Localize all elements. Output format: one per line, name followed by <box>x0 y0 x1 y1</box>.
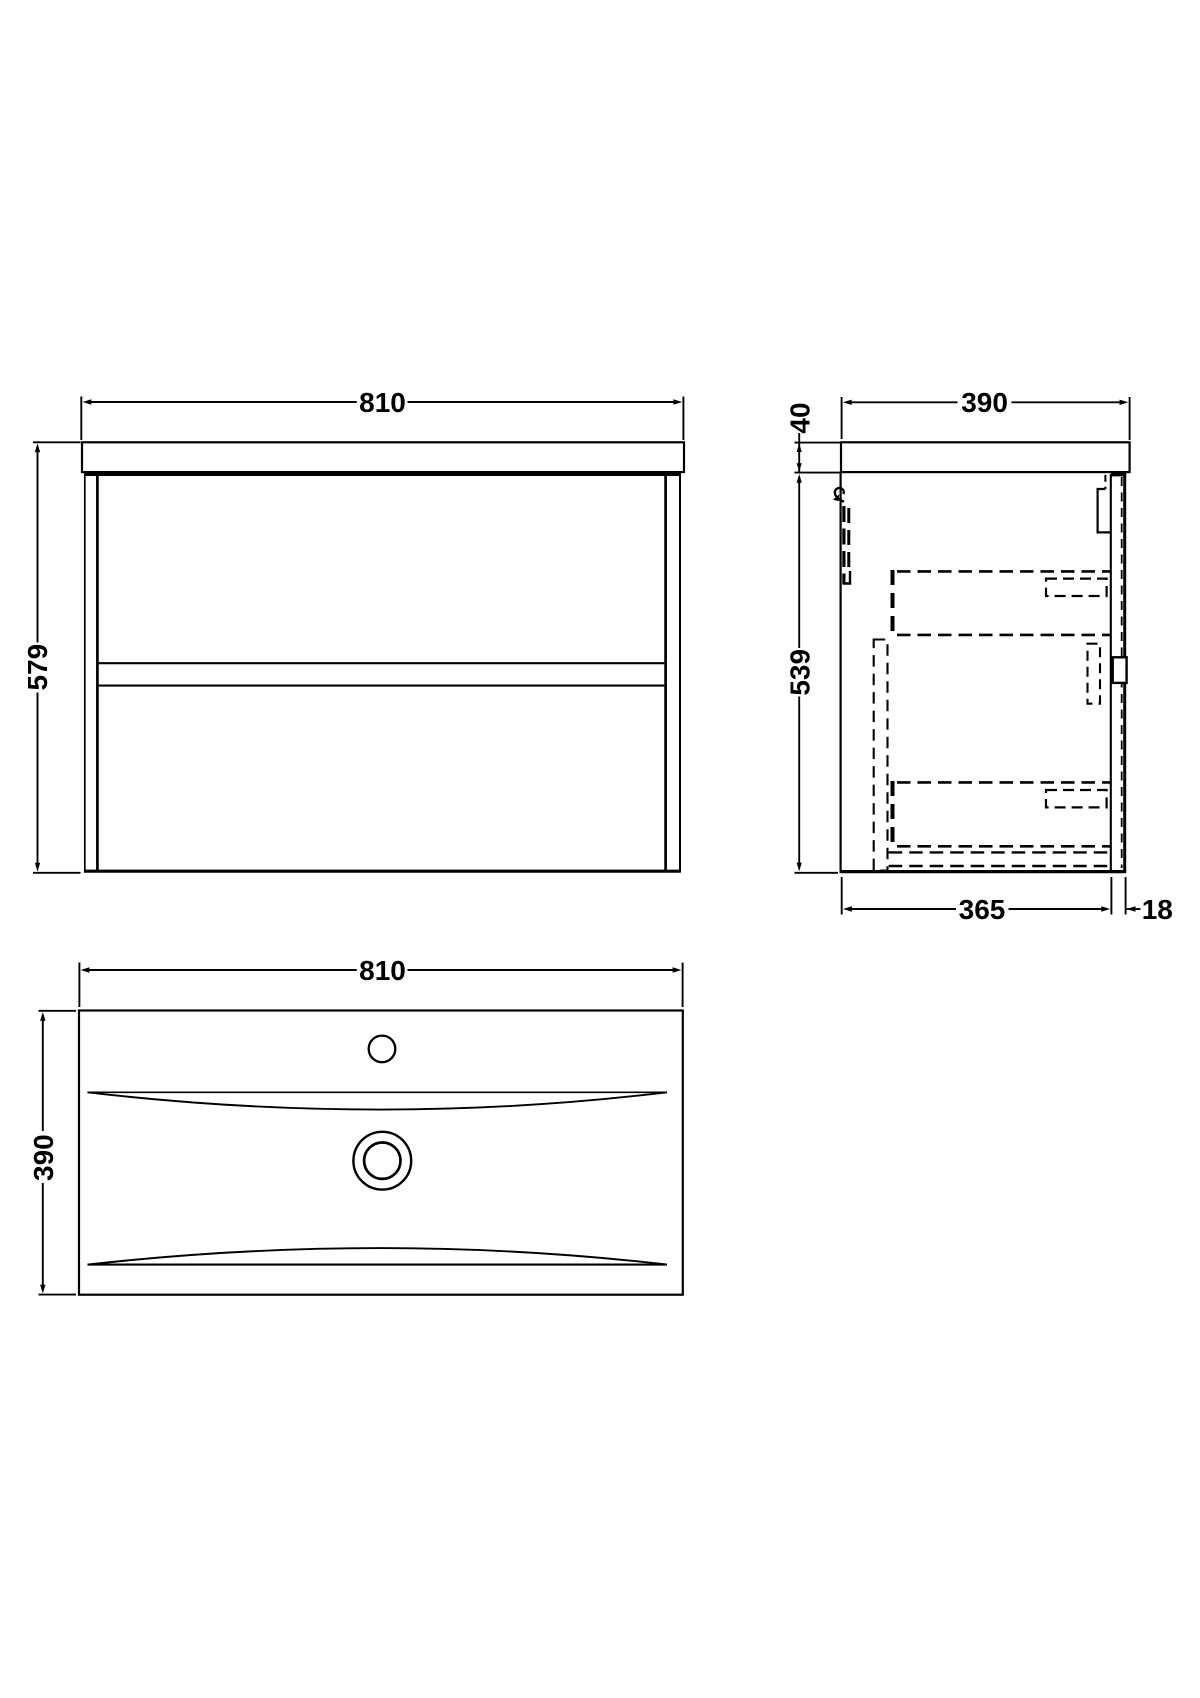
svg-text:579: 579 <box>22 644 53 691</box>
svg-text:365: 365 <box>959 894 1006 925</box>
svg-text:390: 390 <box>28 1134 59 1181</box>
svg-text:40: 40 <box>784 402 815 433</box>
svg-text:810: 810 <box>359 955 406 986</box>
svg-text:18: 18 <box>1142 894 1173 925</box>
svg-text:810: 810 <box>359 387 406 418</box>
svg-text:390: 390 <box>961 387 1008 418</box>
svg-text:539: 539 <box>785 649 816 696</box>
